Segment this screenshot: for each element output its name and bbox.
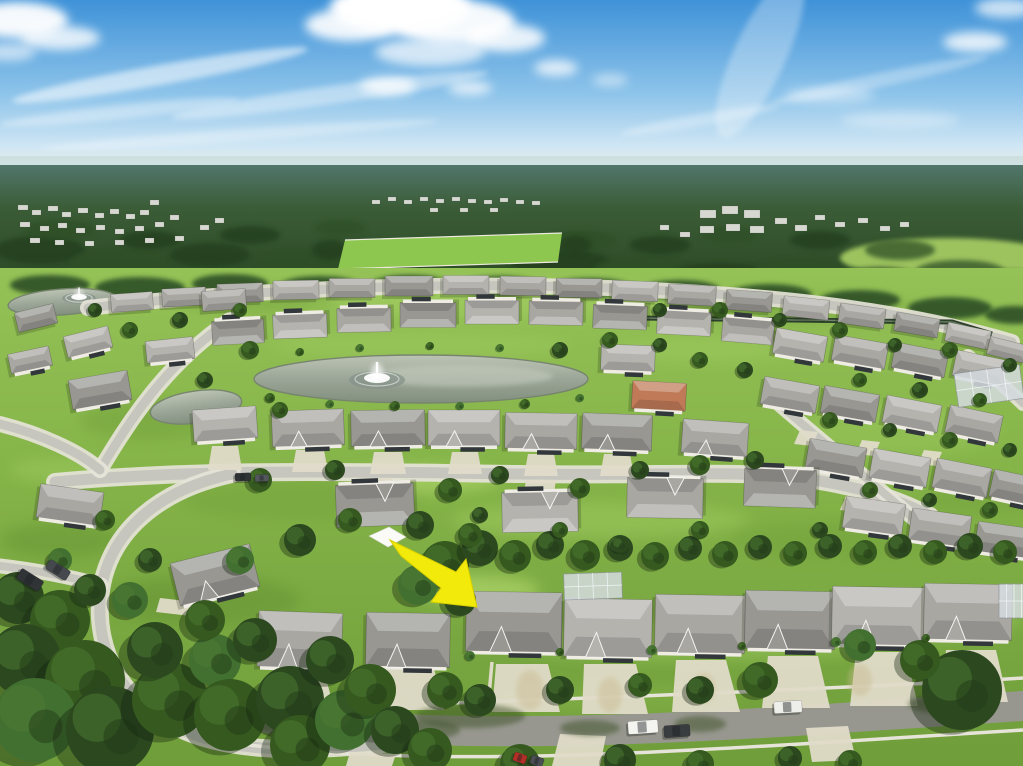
tree-depth [477, 544, 491, 558]
house [337, 302, 395, 333]
tree-depth [299, 351, 302, 354]
house [597, 344, 655, 378]
garage-door [613, 451, 637, 456]
distant-building [880, 226, 890, 231]
forest-canopy [170, 243, 250, 267]
tree-depth [524, 403, 528, 407]
tree-depth [744, 368, 750, 374]
distant-building [500, 198, 508, 202]
tree-depth [559, 528, 565, 534]
roof-shaded-plane [745, 628, 835, 649]
cloud [592, 74, 628, 86]
distant-building [700, 210, 716, 218]
tree-depth [211, 654, 232, 675]
driveway [208, 446, 242, 470]
tree-depth [925, 637, 928, 640]
tree-depth [559, 348, 565, 354]
car-glass [783, 702, 792, 712]
garage-door [625, 372, 644, 377]
tree-depth [639, 468, 646, 475]
garage-door [518, 486, 544, 491]
garage-door [537, 450, 562, 455]
distant-building [700, 226, 714, 233]
tree-depth [949, 348, 955, 354]
roof-shaded-plane [351, 433, 425, 447]
tree-depth [788, 755, 798, 765]
driveway [448, 452, 482, 474]
tree-depth [968, 543, 978, 553]
roof-sunlit-plane [443, 276, 489, 282]
driveway-stain [598, 677, 622, 713]
roof-sunlit-plane [556, 278, 602, 285]
distant-building [388, 197, 396, 201]
tree-depth [651, 649, 655, 653]
distant-building [115, 240, 124, 245]
roof-sunlit-plane [582, 413, 652, 428]
house [272, 307, 330, 339]
tree-depth [579, 397, 582, 400]
distant-building [858, 218, 868, 223]
distant-building [420, 197, 428, 201]
distant-building [140, 210, 149, 215]
tree-depth [609, 338, 615, 344]
distant-building [55, 240, 64, 245]
garage-door [476, 294, 494, 299]
tree-depth [559, 651, 562, 654]
distant-building [200, 225, 209, 230]
garage-door [348, 302, 366, 307]
garage-door [785, 650, 816, 655]
tree-depth [252, 635, 270, 653]
roof-sunlit-plane [627, 504, 703, 519]
house [362, 612, 450, 673]
roof-shaded-plane [273, 293, 319, 300]
tree-depth [619, 543, 625, 549]
tree-depth [758, 544, 768, 554]
tree-depth [863, 549, 873, 559]
garage-door [760, 463, 785, 468]
distant-building [145, 238, 154, 243]
garage-door [695, 654, 726, 659]
aerial-photo-canvas [0, 0, 1023, 766]
roof-sunlit-plane [400, 319, 456, 328]
tree-depth [699, 358, 705, 364]
house [560, 598, 652, 663]
distant-building [170, 215, 179, 220]
tree-depth [859, 378, 865, 384]
forest-canopy [790, 231, 850, 249]
garage-door [541, 295, 559, 300]
tree-depth [468, 532, 478, 542]
distant-building [85, 241, 94, 246]
house [348, 409, 426, 452]
tree-depth [548, 542, 559, 553]
distant-building [95, 213, 104, 218]
distant-building [372, 200, 380, 204]
distant-building [175, 236, 184, 241]
car-glass [672, 726, 680, 737]
cloud [840, 112, 960, 128]
tree-depth [148, 557, 158, 567]
tree-depth [459, 405, 462, 408]
roof-shaded-plane [329, 291, 375, 297]
house [326, 279, 375, 301]
distant-building [215, 218, 224, 223]
tree-depth [779, 318, 785, 324]
garage-door [603, 658, 633, 663]
tree-depth [513, 552, 526, 565]
roof-sunlit-plane [529, 316, 583, 325]
distant-building [835, 222, 845, 227]
tree-depth [469, 655, 473, 659]
distant-building [40, 226, 49, 231]
car [662, 724, 691, 740]
tree-depth [359, 347, 362, 350]
car [626, 719, 659, 736]
distant-building [460, 208, 468, 212]
tree-depth [583, 551, 595, 563]
house [400, 297, 459, 328]
tree-depth [757, 676, 771, 690]
tree-depth [917, 655, 933, 671]
distant-building [490, 208, 498, 212]
roof-shaded-plane [655, 632, 745, 653]
tree-depth [989, 508, 995, 514]
distant-building [135, 226, 144, 231]
tree-depth [688, 545, 698, 555]
roof-sunlit-plane [385, 276, 433, 283]
tree-depth [129, 328, 135, 334]
tree-depth [88, 586, 101, 599]
tree-depth [326, 654, 345, 673]
distant-building [452, 197, 460, 201]
tree-depth [723, 551, 733, 561]
tree-depth [835, 641, 839, 645]
house [502, 412, 578, 455]
forest-canopy [315, 220, 365, 236]
tree-depth [329, 403, 332, 406]
tree-depth [741, 645, 744, 648]
tree-depth [1009, 448, 1015, 454]
tree-depth [334, 468, 342, 476]
distant-building [150, 200, 159, 205]
tree-depth [858, 641, 871, 654]
forest-canopy [630, 236, 690, 254]
house [628, 380, 687, 417]
distant-building [110, 209, 119, 214]
pool-screen-enclosure [564, 572, 623, 600]
roof-sunlit-plane [337, 323, 391, 332]
garage-door [403, 668, 432, 673]
roof-shaded-plane [924, 620, 1012, 641]
distant-building [58, 223, 67, 228]
tree-depth [638, 682, 648, 692]
garage-door [305, 446, 330, 451]
tree-depth [793, 550, 803, 560]
tree-depth [698, 687, 709, 698]
tree-depth [719, 308, 725, 314]
house [578, 413, 652, 457]
tree-depth [499, 347, 502, 350]
car-glass [637, 721, 647, 733]
cloud [20, 26, 100, 50]
distant-building [126, 214, 135, 219]
roof-sunlit-plane [366, 612, 450, 632]
tree-depth [238, 557, 249, 568]
garage-door [460, 447, 484, 452]
fountain-spray [71, 294, 87, 300]
tree-depth [828, 543, 838, 553]
driveway [552, 734, 606, 766]
roof-shaded-plane [505, 436, 577, 449]
tree-depth [442, 686, 456, 700]
tree-depth [239, 308, 245, 314]
tree-depth [94, 308, 100, 314]
garage-door [284, 308, 303, 313]
tree-depth [285, 692, 312, 719]
pool-screen-enclosure [999, 584, 1023, 618]
roof-sunlit-plane [351, 409, 425, 423]
roof-sunlit-plane [428, 410, 500, 422]
driveway-stain [516, 670, 544, 710]
tree-depth [249, 348, 256, 355]
driveway-stain [848, 664, 872, 696]
garage-door [873, 646, 904, 651]
distant-building [484, 200, 492, 204]
tree-depth [894, 343, 900, 349]
garage-door [509, 653, 542, 658]
roof-shaded-plane [500, 289, 546, 296]
cloud [305, 9, 395, 41]
tree-depth [151, 643, 173, 665]
tree-depth [478, 696, 491, 709]
distant-building [775, 218, 787, 224]
distant-building [726, 224, 740, 231]
house [440, 276, 489, 298]
distant-building [516, 200, 524, 204]
house [270, 280, 319, 303]
distant-building [18, 205, 28, 210]
roof-sunlit-plane [564, 598, 652, 619]
tree-depth [1003, 549, 1013, 559]
car-glass [240, 474, 245, 480]
distant-building [404, 200, 412, 204]
roof-sunlit-plane [466, 591, 562, 613]
tree-depth [127, 596, 141, 610]
house [425, 410, 500, 452]
tree-depth [558, 687, 569, 698]
driveway [370, 452, 406, 474]
roof-sunlit-plane [273, 280, 319, 287]
tree-depth [279, 408, 285, 414]
garage-door [412, 297, 431, 302]
driveway [524, 454, 558, 476]
house [529, 295, 587, 326]
car-glass [259, 475, 263, 480]
distant-building [722, 206, 738, 214]
roof-sunlit-plane [329, 279, 375, 285]
roof-shaded-plane [428, 434, 500, 446]
house [497, 276, 546, 299]
distant-building [430, 208, 438, 212]
tree-depth [269, 397, 273, 401]
tree-depth [949, 438, 955, 444]
tree-depth [179, 318, 185, 324]
tree-depth [919, 388, 925, 394]
tree-depth [499, 473, 506, 480]
distant-building [815, 215, 825, 220]
roof-sunlit-plane [832, 586, 924, 607]
tree-depth [869, 488, 875, 494]
garage-door [605, 299, 624, 304]
tree-depth [418, 522, 429, 533]
distant-building [76, 228, 85, 233]
tree-depth [479, 513, 485, 519]
roof-sunlit-plane [655, 594, 745, 615]
tree-depth [839, 328, 845, 334]
roof-sunlit-plane [745, 590, 835, 611]
roof-shaded-plane [400, 303, 456, 312]
house [593, 298, 651, 330]
forest-canopy [220, 226, 280, 244]
house [107, 292, 153, 316]
house [465, 294, 522, 324]
distant-building [32, 210, 41, 215]
roof-shaded-plane [366, 648, 450, 668]
house [722, 289, 772, 315]
roof-shaded-plane [385, 289, 433, 296]
tree-depth [394, 405, 398, 409]
distant-building [468, 199, 476, 203]
tree-depth [448, 487, 458, 497]
roof-shaded-plane [465, 631, 561, 653]
roof-shaded-plane [465, 300, 519, 308]
house [651, 594, 745, 659]
roof-shaded-plane [502, 491, 578, 506]
driveway [292, 450, 328, 472]
distant-building [744, 210, 760, 218]
house [382, 276, 433, 299]
roof-sunlit-plane [465, 316, 519, 324]
roof-shaded-plane [443, 288, 489, 294]
car [772, 700, 803, 716]
tree-depth [898, 543, 908, 553]
tree-shadow [560, 720, 620, 736]
tree-depth [889, 428, 895, 434]
distant-building [660, 225, 669, 230]
tree-depth [699, 528, 706, 535]
tree-depth [956, 680, 988, 712]
distant-building [96, 225, 105, 230]
tree-depth [653, 553, 664, 564]
distant-building [680, 232, 690, 237]
distant-building [532, 201, 540, 205]
fountain-spray [364, 373, 390, 383]
roof-shaded-plane [564, 637, 652, 658]
distant-building [30, 238, 40, 243]
tree-depth [366, 684, 387, 705]
tree-depth [699, 463, 707, 471]
garage-door [351, 478, 378, 483]
distant-building [155, 222, 164, 227]
garage-door [669, 305, 688, 310]
garage-door [655, 411, 674, 416]
distant-building [795, 225, 807, 231]
roof-shaded-plane [529, 301, 583, 310]
distant-building [436, 199, 444, 203]
distant-building [48, 206, 58, 211]
tree-depth [819, 528, 825, 534]
aerial-neighborhood-photo [0, 0, 1023, 766]
tree-depth [1009, 363, 1015, 369]
tree-depth [659, 343, 665, 349]
tree-depth [348, 517, 358, 527]
distant-building [62, 212, 71, 217]
distant-building [78, 208, 88, 213]
subject-house [462, 591, 562, 658]
tree-depth [429, 345, 432, 348]
forest-canopy [559, 236, 591, 254]
tree-depth [391, 724, 410, 743]
garage-door [385, 447, 410, 452]
tree-depth [415, 580, 431, 596]
tree-depth [204, 378, 210, 384]
tree-depth [427, 745, 445, 763]
roof-shaded-plane [556, 291, 602, 298]
house [741, 590, 835, 655]
distant-building [900, 222, 909, 227]
tree-depth [979, 398, 985, 404]
garage-door [963, 641, 993, 646]
cloud [375, 38, 485, 66]
roof-sunlit-plane [505, 412, 577, 425]
tree-depth [933, 549, 943, 559]
car [233, 473, 251, 484]
tree-depth [56, 613, 80, 637]
distant-building [20, 222, 30, 227]
tree-depth [202, 615, 218, 631]
roof-sunlit-plane [743, 493, 815, 508]
tree-depth [929, 498, 935, 504]
tree-depth [298, 536, 311, 549]
tree-depth [104, 518, 112, 526]
tree-depth [579, 486, 587, 494]
tree-depth [659, 308, 665, 314]
tree-depth [829, 418, 835, 424]
roof-shaded-plane [337, 308, 391, 317]
house [553, 278, 602, 301]
car [253, 474, 269, 484]
cloud [534, 60, 578, 76]
forest-canopy [865, 240, 935, 260]
tree-depth [754, 458, 761, 465]
roof-sunlit-plane [500, 276, 546, 283]
distant-building [115, 229, 124, 234]
cloud [943, 32, 1007, 52]
distant-building [750, 226, 764, 233]
